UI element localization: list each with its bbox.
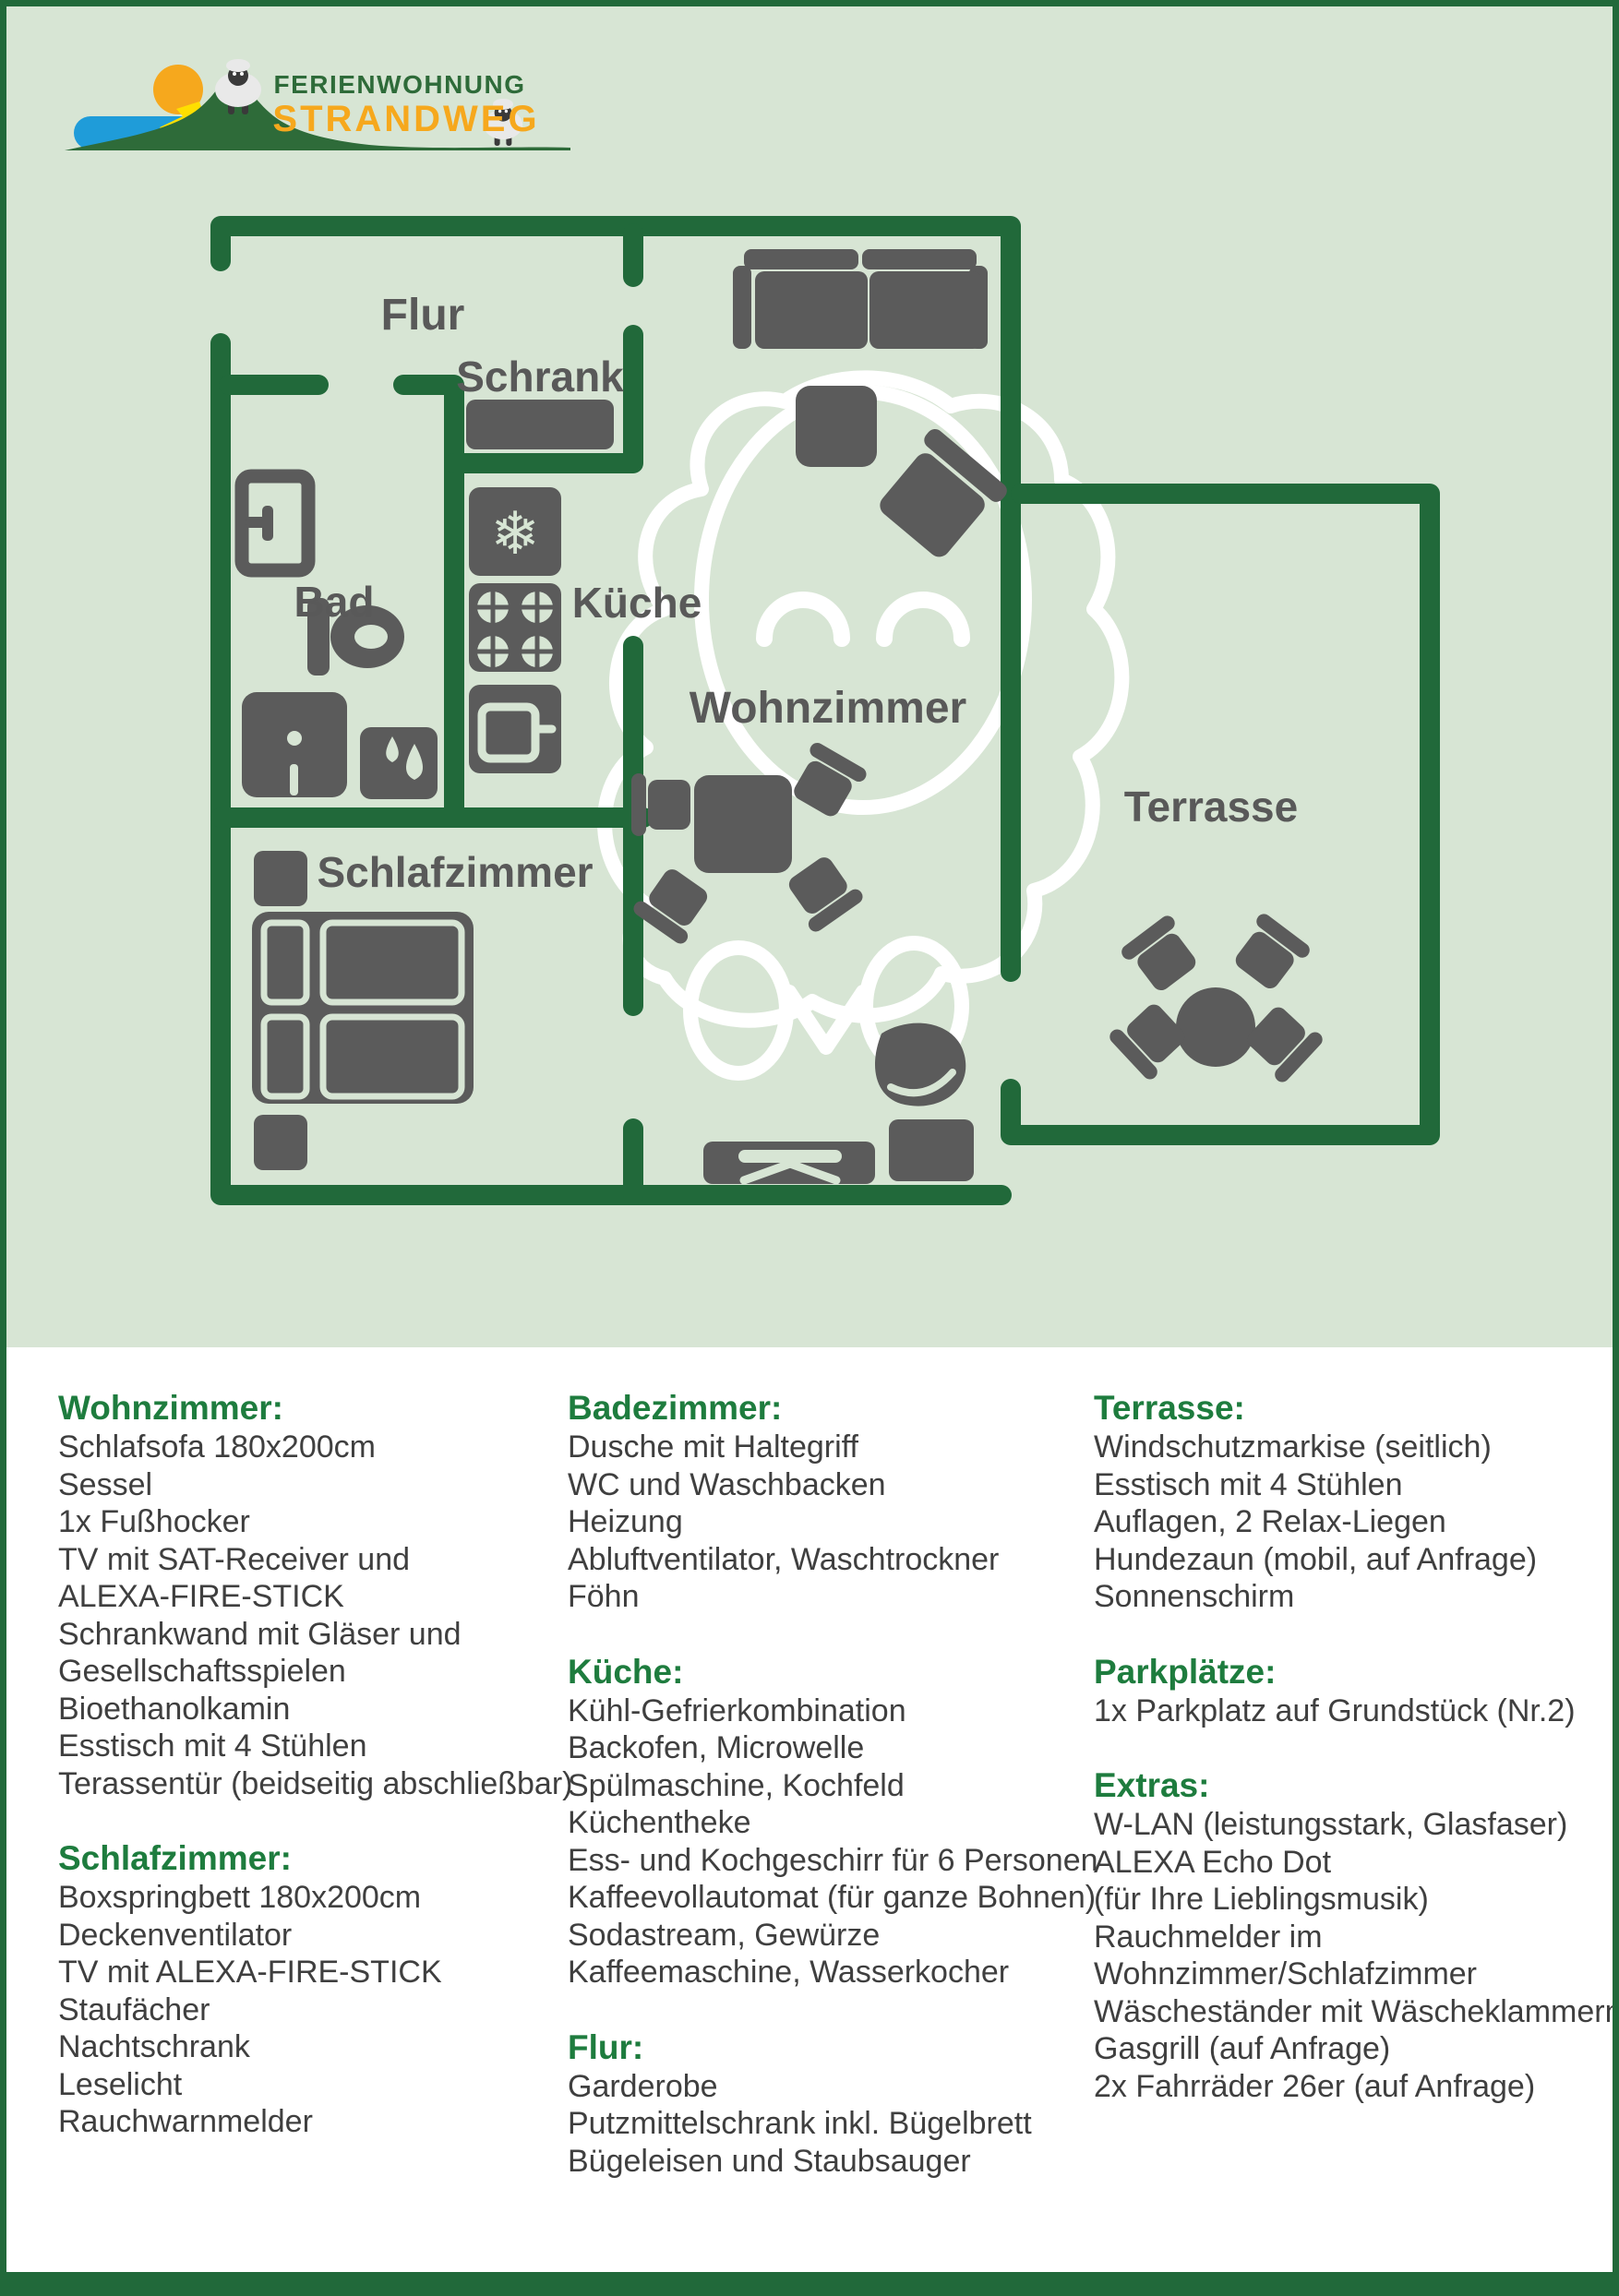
amenity-item: Staufächer <box>58 1991 575 2029</box>
amenity-item: Heizung <box>568 1503 1085 1541</box>
amenity-item: Kühl-Gefrierkombination <box>568 1692 1085 1730</box>
section-heading: Küche: <box>568 1653 1085 1691</box>
amenity-item: 2x Fahrräder 26er (auf Anfrage) <box>1094 2068 1611 2106</box>
terrace-table-icon <box>1176 987 1255 1067</box>
amenity-item: Hundezaun (mobil, auf Anfrage) <box>1094 1541 1611 1579</box>
amenity-item: Gasgrill (auf Anfrage) <box>1094 2030 1611 2068</box>
amenity-item: Boxspringbett 180x200cm <box>58 1879 575 1917</box>
amenity-item: Rauchmelder im <box>1094 1919 1611 1956</box>
amenity-section: Wohnzimmer:Schlafsofa 180x200cmSessel1x … <box>58 1389 575 1802</box>
amenity-section: Küche:Kühl-GefrierkombinationBackofen, M… <box>568 1653 1085 1991</box>
amenity-item: W-LAN (leistungsstark, Glasfaser) <box>1094 1806 1611 1844</box>
amenity-item: Dusche mit Haltegriff <box>568 1429 1085 1466</box>
amenity-item: 1x Parkplatz auf Grundstück (Nr.2) <box>1094 1692 1611 1730</box>
amenity-item: Kaffeevollautomat (für ganze Bohnen) <box>568 1879 1085 1917</box>
amenity-item: Garderobe <box>568 2068 1085 2106</box>
sheep-tail <box>875 1023 965 1106</box>
amenity-item: Auflagen, 2 Relax-Liegen <box>1094 1503 1611 1541</box>
amenity-section: Flur:GarderobePutzmittelschrank inkl. Bü… <box>568 2028 1085 2181</box>
amenities-column-3: Terrasse:Windschutzmarkise (seitlich)Ess… <box>1094 1389 1611 2142</box>
amenity-item: WC und Waschbacken <box>568 1466 1085 1504</box>
amenity-item: (für Ihre Lieblingsmusik) <box>1094 1881 1611 1919</box>
amenity-item: Esstisch mit 4 Stühlen <box>1094 1466 1611 1504</box>
amenity-item: Backofen, Microwelle <box>568 1729 1085 1767</box>
amenity-section: Parkplätze:1x Parkplatz auf Grundstück (… <box>1094 1653 1611 1730</box>
amenity-item: Terassentür (beidseitig abschließbar) <box>58 1765 575 1803</box>
amenity-item: Ess- und Kochgeschirr für 6 Personen <box>568 1842 1085 1880</box>
amenity-item: Windschutzmarkise (seitlich) <box>1094 1429 1611 1466</box>
amenity-item: Sonnenschirm <box>1094 1578 1611 1616</box>
amenity-item: Gesellschaftsspielen <box>58 1653 575 1691</box>
amenity-item: ALEXA Echo Dot <box>1094 1844 1611 1882</box>
amenity-item: Abluftventilator, Waschtrockner <box>568 1541 1085 1579</box>
section-heading: Terrasse: <box>1094 1389 1611 1427</box>
section-heading: Flur: <box>568 2028 1085 2066</box>
amenity-item: Nachtschrank <box>58 2028 575 2066</box>
section-heading: Schlafzimmer: <box>58 1839 575 1877</box>
amenity-section: Extras:W-LAN (leistungsstark, Glasfaser)… <box>1094 1766 1611 2105</box>
amenities-lists: Wohnzimmer:Schlafsofa 180x200cmSessel1x … <box>0 0 1619 949</box>
amenity-section: Terrasse:Windschutzmarkise (seitlich)Ess… <box>1094 1389 1611 1616</box>
amenity-item: 1x Fußhocker <box>58 1503 575 1541</box>
amenity-item: Schrankwand mit Gläser und <box>58 1616 575 1654</box>
amenity-item: Spülmaschine, Kochfeld <box>568 1767 1085 1805</box>
section-heading: Wohnzimmer: <box>58 1389 575 1427</box>
amenities-column-1: Wohnzimmer:Schlafsofa 180x200cmSessel1x … <box>58 1389 575 2178</box>
amenity-section: Schlafzimmer:Boxspringbett 180x200cmDeck… <box>58 1839 575 2141</box>
amenity-item: Kaffeemaschine, Wasserkocher <box>568 1954 1085 1991</box>
amenity-item: Bioethanolkamin <box>58 1691 575 1728</box>
nightstand-icon <box>254 1115 307 1170</box>
amenity-item: Bügeleisen und Staubsauger <box>568 2143 1085 2181</box>
amenity-item: Sessel <box>58 1466 575 1504</box>
section-heading: Parkplätze: <box>1094 1653 1611 1691</box>
cabinet-icon <box>889 1119 974 1181</box>
amenities-column-2: Badezimmer:Dusche mit HaltegriffWC und W… <box>568 1389 1085 2217</box>
amenity-section: Badezimmer:Dusche mit HaltegriffWC und W… <box>568 1389 1085 1616</box>
amenity-item: Küchentheke <box>568 1804 1085 1842</box>
amenity-item: TV mit SAT-Receiver und <box>58 1541 575 1579</box>
amenity-item: Wohnzimmer/Schlafzimmer <box>1094 1955 1611 1993</box>
amenity-item: Rauchwarnmelder <box>58 2103 575 2141</box>
amenity-item: Esstisch mit 4 Stühlen <box>58 1728 575 1765</box>
section-heading: Extras: <box>1094 1766 1611 1804</box>
amenity-item: Leselicht <box>58 2066 575 2104</box>
amenity-item: TV mit ALEXA-FIRE-STICK <box>58 1954 575 1991</box>
bottom-green-bar <box>0 2272 1619 2296</box>
amenity-item: Föhn <box>568 1578 1085 1616</box>
amenity-item: ALEXA-FIRE-STICK <box>58 1578 575 1616</box>
section-heading: Badezimmer: <box>568 1389 1085 1427</box>
amenity-item: Wäscheständer mit Wäscheklammern <box>1094 1993 1611 2031</box>
amenity-item: Deckenventilator <box>58 1917 575 1955</box>
tv-board-icon <box>703 1142 875 1184</box>
amenity-item: Sodastream, Gewürze <box>568 1917 1085 1955</box>
amenity-item: Putzmittelschrank inkl. Bügelbrett <box>568 2105 1085 2143</box>
amenity-item: Schlafsofa 180x200cm <box>58 1429 575 1466</box>
